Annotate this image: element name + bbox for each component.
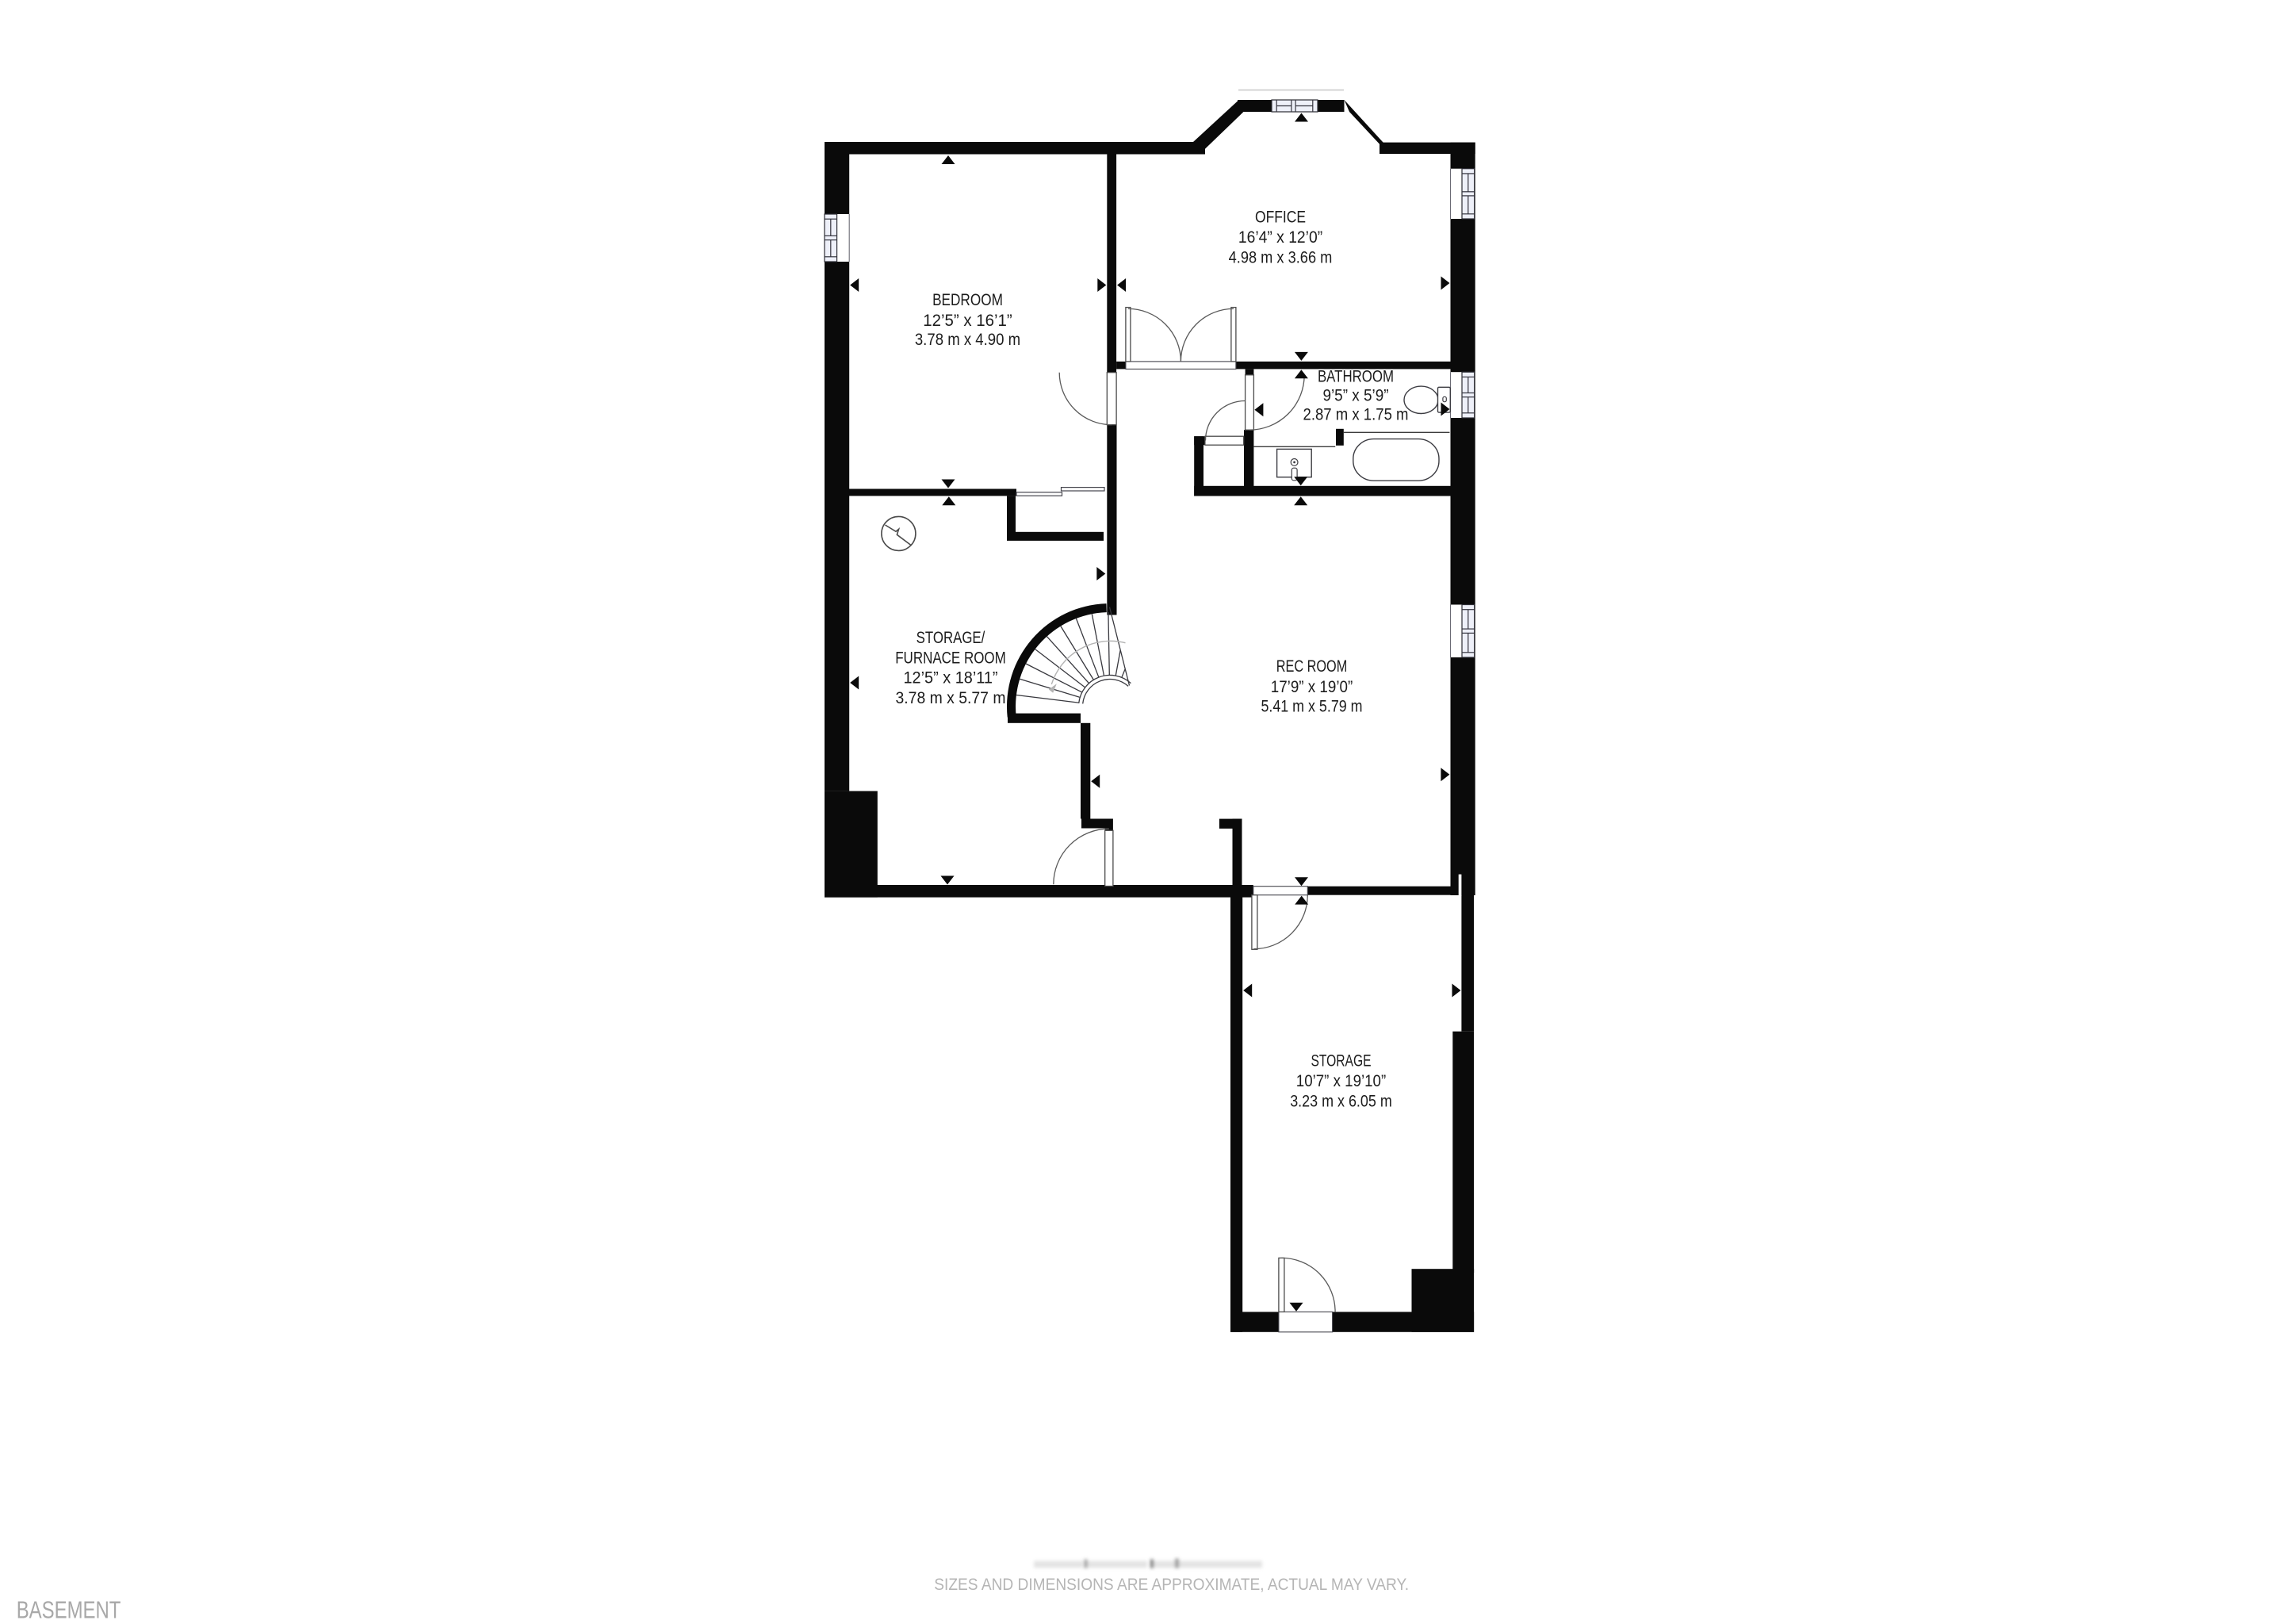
- svg-text:2.87 m x 1.75 m: 2.87 m x 1.75 m: [1303, 406, 1409, 424]
- svg-text:16’4” x 12’0”: 16’4” x 12’0”: [1238, 228, 1322, 247]
- svg-text:12’5” x 18’11”: 12’5” x 18’11”: [904, 669, 998, 688]
- svg-text:BASEMENT: BASEMENT: [17, 1596, 121, 1624]
- svg-text:5.41 m x 5.79 m: 5.41 m x 5.79 m: [1261, 698, 1362, 716]
- svg-text:3.78 m x 4.90 m: 3.78 m x 4.90 m: [915, 331, 1020, 349]
- svg-text:4.98 m x 3.66 m: 4.98 m x 3.66 m: [1229, 248, 1333, 266]
- svg-text:9’5” x 5’9”: 9’5” x 5’9”: [1322, 387, 1388, 405]
- svg-text:STORAGE: STORAGE: [1311, 1052, 1371, 1071]
- svg-text:3.23 m x 6.05 m: 3.23 m x 6.05 m: [1290, 1092, 1392, 1110]
- svg-text:FURNACE ROOM: FURNACE ROOM: [895, 649, 1006, 667]
- svg-text:BATHROOM: BATHROOM: [1318, 368, 1394, 386]
- svg-text:3.78 m x 5.77 m: 3.78 m x 5.77 m: [896, 689, 1006, 707]
- svg-text:SIZES AND DIMENSIONS ARE APPRO: SIZES AND DIMENSIONS ARE APPROXIMATE, AC…: [934, 1575, 1409, 1594]
- svg-text:12’5” x 16’1”: 12’5” x 16’1”: [923, 312, 1012, 330]
- svg-text:10’7” x 19’10”: 10’7” x 19’10”: [1296, 1072, 1386, 1090]
- svg-text:17’9” x 19’0”: 17’9” x 19’0”: [1271, 678, 1353, 696]
- svg-text:STORAGE/: STORAGE/: [916, 629, 985, 647]
- svg-text:BEDROOM: BEDROOM: [932, 291, 1003, 309]
- svg-text:REC ROOM: REC ROOM: [1276, 657, 1348, 676]
- svg-text:OFFICE: OFFICE: [1255, 209, 1306, 227]
